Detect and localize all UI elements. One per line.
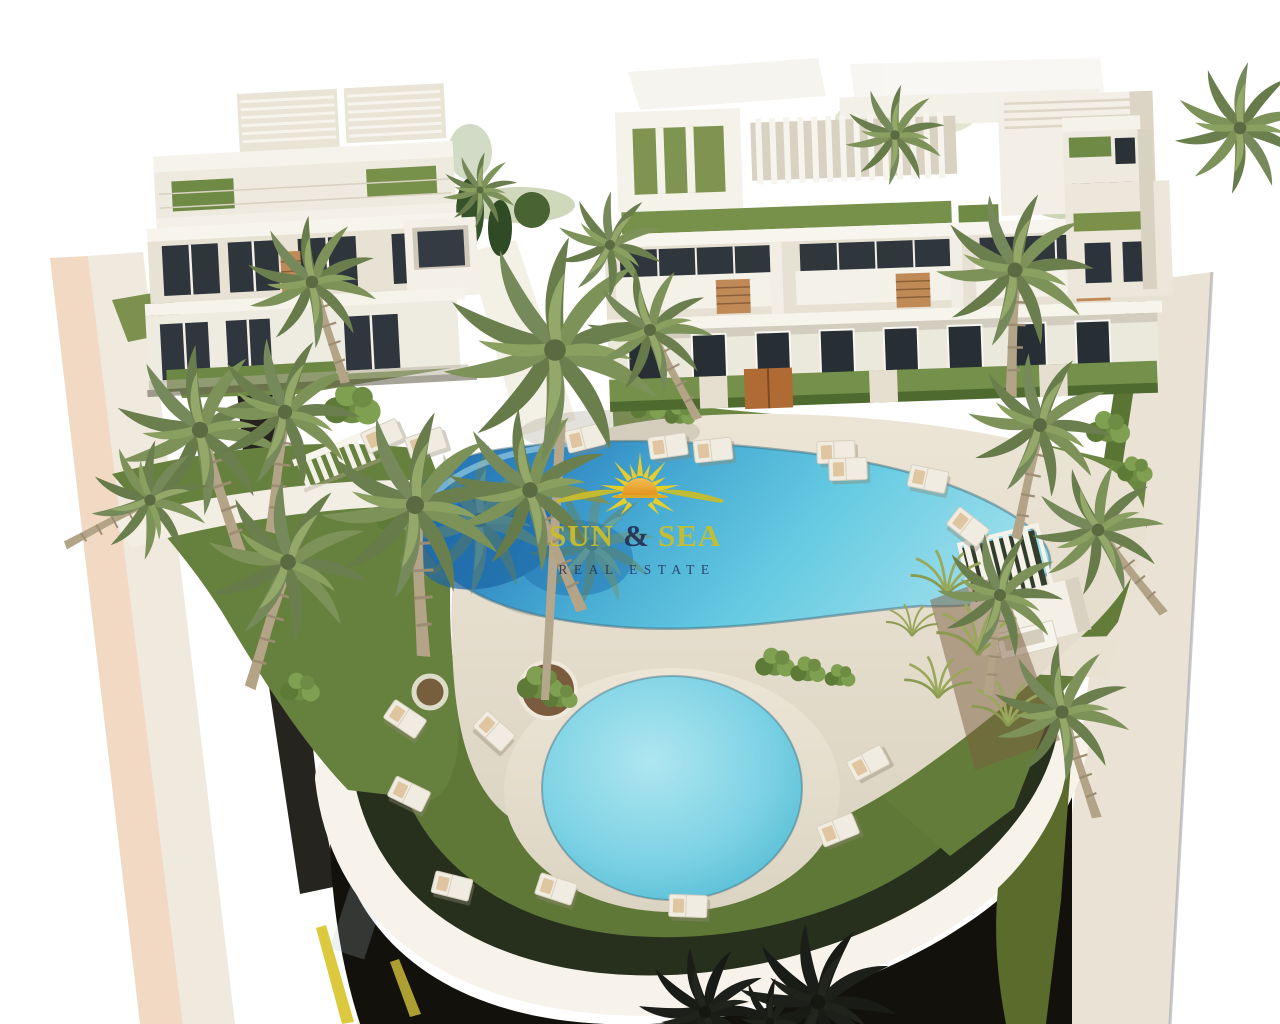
logo-ampersand: & xyxy=(623,518,649,553)
balcony-box xyxy=(404,217,480,299)
wood-gate xyxy=(744,367,793,409)
logo-subtitle: REAL ESTATE xyxy=(558,562,715,577)
round-pool xyxy=(542,676,802,900)
window xyxy=(1084,242,1111,283)
window xyxy=(1115,137,1136,164)
roof-garden xyxy=(1073,211,1152,232)
logo-word-sea: SEA xyxy=(658,518,721,553)
render-canvas: SUN & SEA REAL ESTATE xyxy=(0,0,1280,1024)
logo-word-sun: SUN xyxy=(549,518,614,553)
round-tree xyxy=(514,192,550,228)
open-pergola xyxy=(615,108,743,212)
roof-garden xyxy=(1069,136,1112,157)
property-aerial-render: SUN & SEA REAL ESTATE xyxy=(0,0,1280,1024)
